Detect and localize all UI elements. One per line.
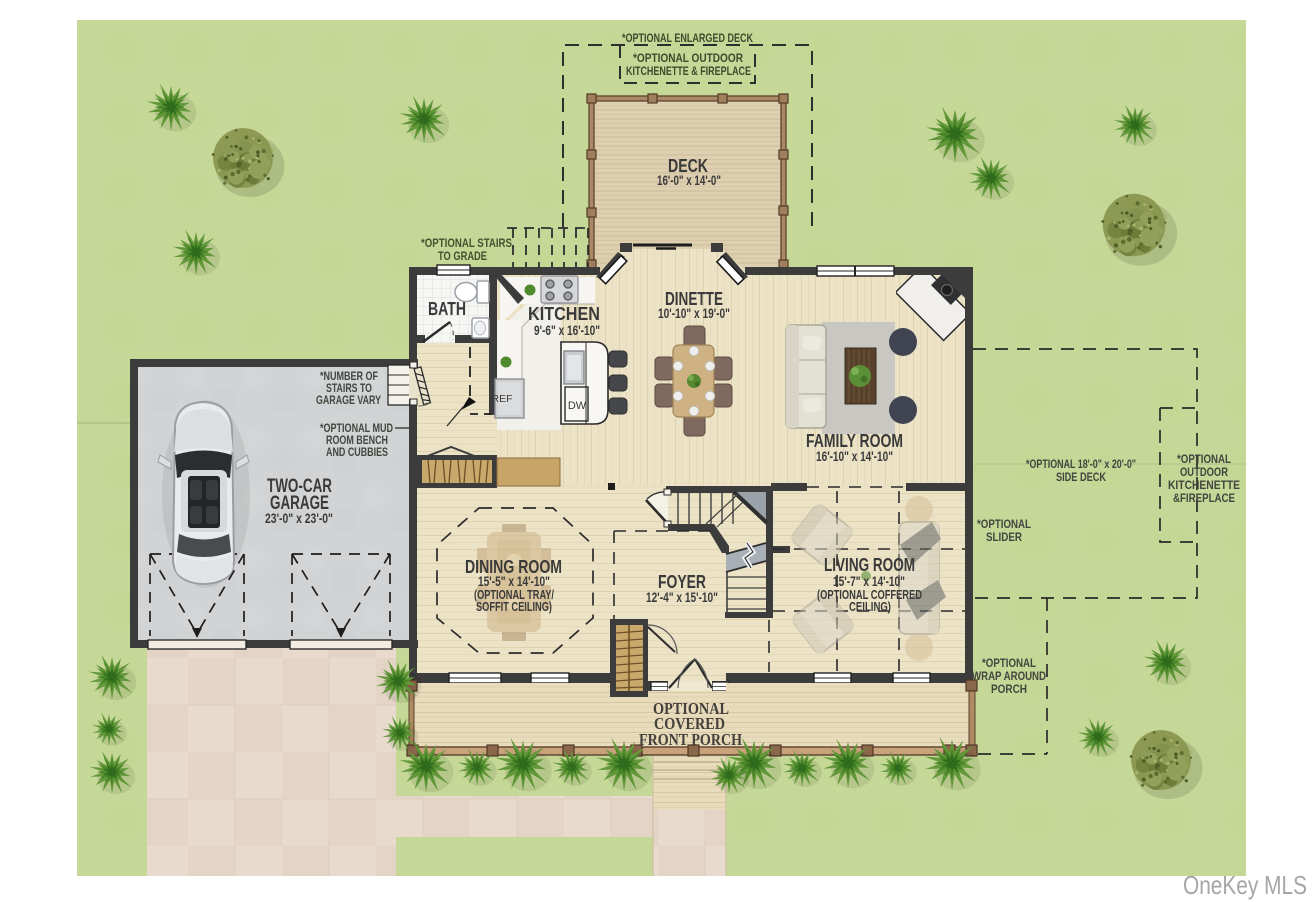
svg-text:OUTDOOR: OUTDOOR <box>1180 467 1229 479</box>
svg-text:*OPTIONAL 18'-0" x 20'-0": *OPTIONAL 18'-0" x 20'-0" <box>1026 459 1136 471</box>
svg-text:REF: REF <box>492 393 513 405</box>
svg-text:12'-4" x 15'-10": 12'-4" x 15'-10" <box>646 590 718 605</box>
svg-text:SIDE DECK: SIDE DECK <box>1056 472 1107 484</box>
svg-text:&FIREPLACE: &FIREPLACE <box>1173 493 1235 505</box>
svg-text:TO GRADE: TO GRADE <box>438 249 487 263</box>
svg-text:OneKey MLS: OneKey MLS <box>1183 870 1307 900</box>
svg-text:10'-10" x 19'-0": 10'-10" x 19'-0" <box>658 306 730 321</box>
svg-text:BATH: BATH <box>428 299 466 319</box>
svg-text:KITCHENETTE & FIREPLACE: KITCHENETTE & FIREPLACE <box>626 64 751 78</box>
svg-text:16'-0" x 14'-0": 16'-0" x 14'-0" <box>657 173 721 188</box>
svg-text:*OPTIONAL: *OPTIONAL <box>982 658 1036 670</box>
svg-text:*OPTIONAL: *OPTIONAL <box>977 519 1031 531</box>
svg-text:*NUMBER OF: *NUMBER OF <box>320 371 378 383</box>
svg-text:*OPTIONAL ENLARGED DECK: *OPTIONAL ENLARGED DECK <box>622 31 753 45</box>
svg-text:ROOM BENCH: ROOM BENCH <box>326 435 388 447</box>
svg-text:KITCHENETTE: KITCHENETTE <box>1168 480 1240 492</box>
svg-text:WRAP AROUND: WRAP AROUND <box>972 671 1046 683</box>
svg-text:SOFFIT CEILING): SOFFIT CEILING) <box>476 600 552 614</box>
svg-text:9'-6" x 16'-10": 9'-6" x 16'-10" <box>534 323 600 338</box>
svg-text:KITCHEN: KITCHEN <box>528 304 600 324</box>
svg-text:*OPTIONAL STAIRS: *OPTIONAL STAIRS <box>421 236 512 250</box>
svg-text:LIVING ROOM: LIVING ROOM <box>824 555 915 575</box>
svg-text:15'-7" x 14'-10": 15'-7" x 14'-10" <box>833 574 905 589</box>
svg-text:FAMILY ROOM: FAMILY ROOM <box>806 431 903 451</box>
svg-text:15'-5" x 14'-10": 15'-5" x 14'-10" <box>478 574 550 589</box>
svg-text:*OPTIONAL: *OPTIONAL <box>1177 454 1231 466</box>
svg-text:GARAGE VARY: GARAGE VARY <box>316 395 381 407</box>
svg-text:STAIRS TO: STAIRS TO <box>326 383 372 395</box>
svg-text:FOYER: FOYER <box>658 572 706 592</box>
svg-text:AND CUBBIES: AND CUBBIES <box>326 447 388 459</box>
svg-text:16'-10" x 14'-10": 16'-10" x 14'-10" <box>816 449 893 464</box>
svg-text:*OPTIONAL MUD: *OPTIONAL MUD <box>320 423 393 435</box>
svg-text:PORCH: PORCH <box>991 684 1027 696</box>
svg-text:FRONT PORCH: FRONT PORCH <box>639 730 742 749</box>
svg-text:23'-0" x 23'-0": 23'-0" x 23'-0" <box>265 511 333 526</box>
svg-text:DW: DW <box>568 400 587 412</box>
svg-text:SLIDER: SLIDER <box>986 532 1023 544</box>
svg-text:CEILING): CEILING) <box>849 600 891 614</box>
svg-text:*OPTIONAL OUTDOOR: *OPTIONAL OUTDOOR <box>633 51 743 65</box>
